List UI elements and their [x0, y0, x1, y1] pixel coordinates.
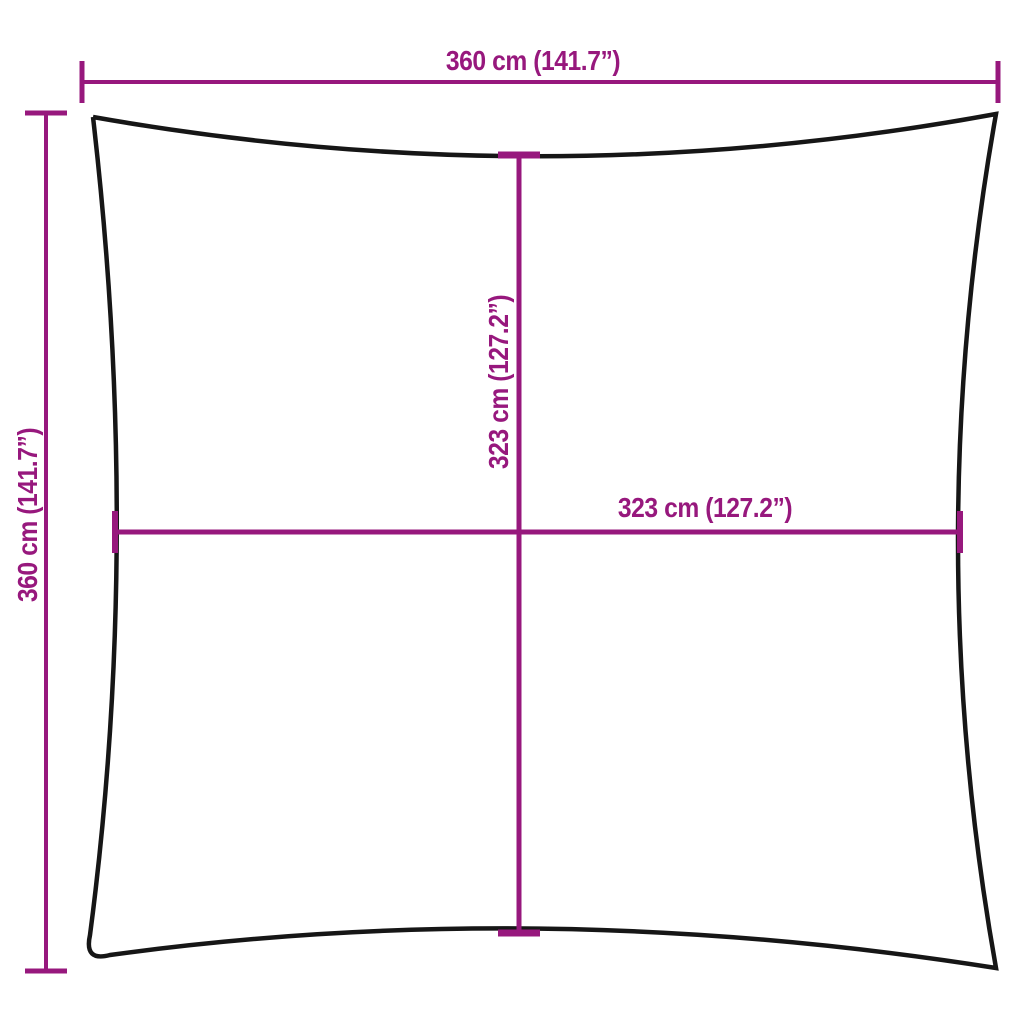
dimension-label-center-width: 323 cm (127.2”) [564, 492, 846, 524]
dimension-label-top-width: 360 cm (141.7”) [392, 45, 674, 77]
sail-outline [89, 114, 996, 968]
dimension-label-center-height: 323 cm (127.2”) [483, 241, 515, 523]
dimension-label-left-height: 360 cm (141.7”) [12, 374, 44, 656]
dimension-diagram: 360 cm (141.7”) 360 cm (141.7”) 323 cm (… [0, 0, 1024, 1024]
